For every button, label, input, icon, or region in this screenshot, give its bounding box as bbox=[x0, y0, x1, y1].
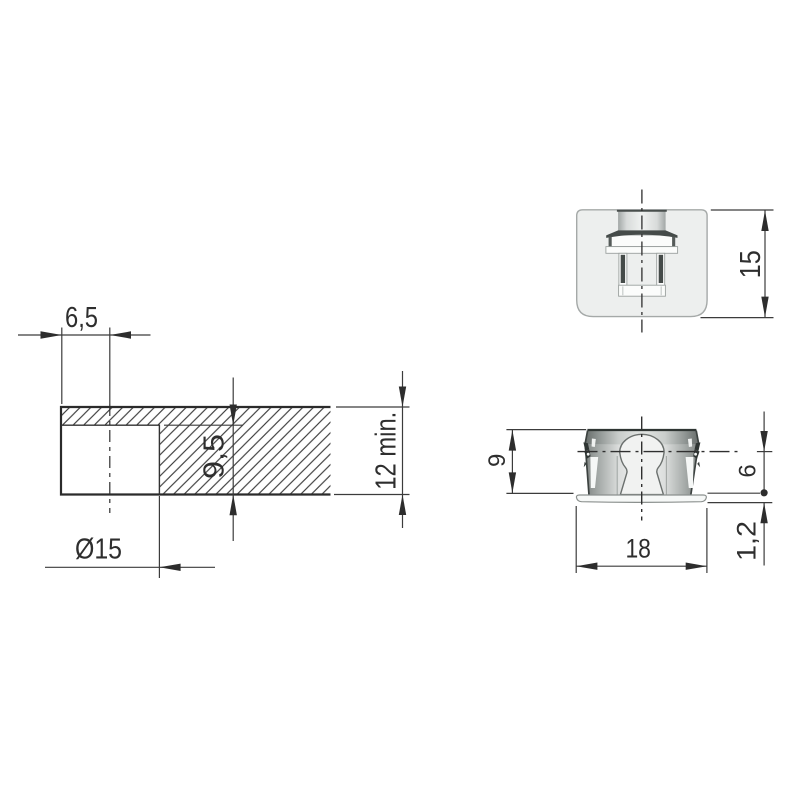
svg-text:9: 9 bbox=[484, 454, 511, 467]
svg-text:6: 6 bbox=[735, 464, 762, 477]
svg-text:18: 18 bbox=[625, 534, 651, 564]
svg-text:9,5: 9,5 bbox=[198, 434, 230, 479]
svg-text:6,5: 6,5 bbox=[65, 302, 98, 334]
svg-text:1,2: 1,2 bbox=[732, 521, 762, 561]
svg-text:12 min.: 12 min. bbox=[370, 412, 402, 490]
svg-text:Ø15: Ø15 bbox=[75, 534, 122, 566]
svg-text:15: 15 bbox=[735, 250, 767, 278]
